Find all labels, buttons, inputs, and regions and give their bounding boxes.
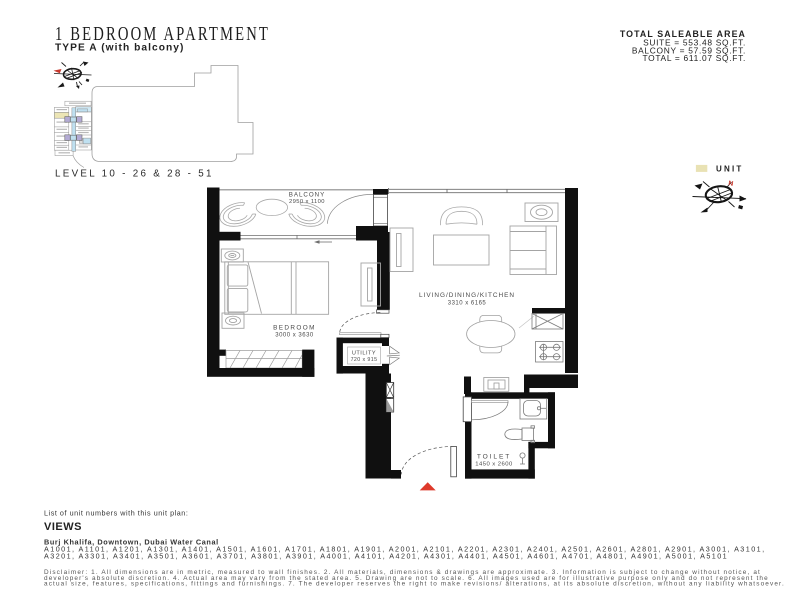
svg-text:actual size, features, specifi: actual size, features, specifications, f… — [44, 581, 785, 588]
svg-text:UNIT: UNIT — [716, 165, 743, 174]
svg-text:BALCONY: BALCONY — [289, 192, 326, 199]
svg-text:1 BEDROOM APARTMENT: 1 BEDROOM APARTMENT — [55, 23, 270, 45]
svg-text:TOILET: TOILET — [477, 454, 511, 461]
svg-text:3310 x 6165: 3310 x 6165 — [448, 301, 487, 307]
svg-text:TOTAL = 611.07 SQ.FT.: TOTAL = 611.07 SQ.FT. — [642, 53, 746, 63]
svg-text:VIEWS: VIEWS — [44, 521, 82, 533]
svg-text:LIVING/DINING/KITCHEN: LIVING/DINING/KITCHEN — [419, 292, 515, 299]
svg-text:List of unit numbers with this: List of unit numbers with this unit plan… — [44, 509, 188, 518]
svg-text:2950 x 1100: 2950 x 1100 — [289, 199, 325, 205]
svg-text:1450 x 2600: 1450 x 2600 — [475, 462, 513, 468]
svg-text:BEDROOM: BEDROOM — [273, 325, 316, 332]
svg-text:A3201, A3301, A3401, A3501, A3: A3201, A3301, A3401, A3501, A3601, A3701… — [44, 552, 728, 561]
svg-text:TYPE A (with balcony): TYPE A (with balcony) — [55, 43, 184, 54]
svg-text:UTILITY: UTILITY — [352, 351, 376, 357]
svg-text:720 x 915: 720 x 915 — [351, 357, 378, 363]
svg-text:LEVEL 10 - 26 & 28 - 51: LEVEL 10 - 26 & 28 - 51 — [55, 169, 214, 180]
svg-text:3000 x 3630: 3000 x 3630 — [275, 333, 314, 339]
